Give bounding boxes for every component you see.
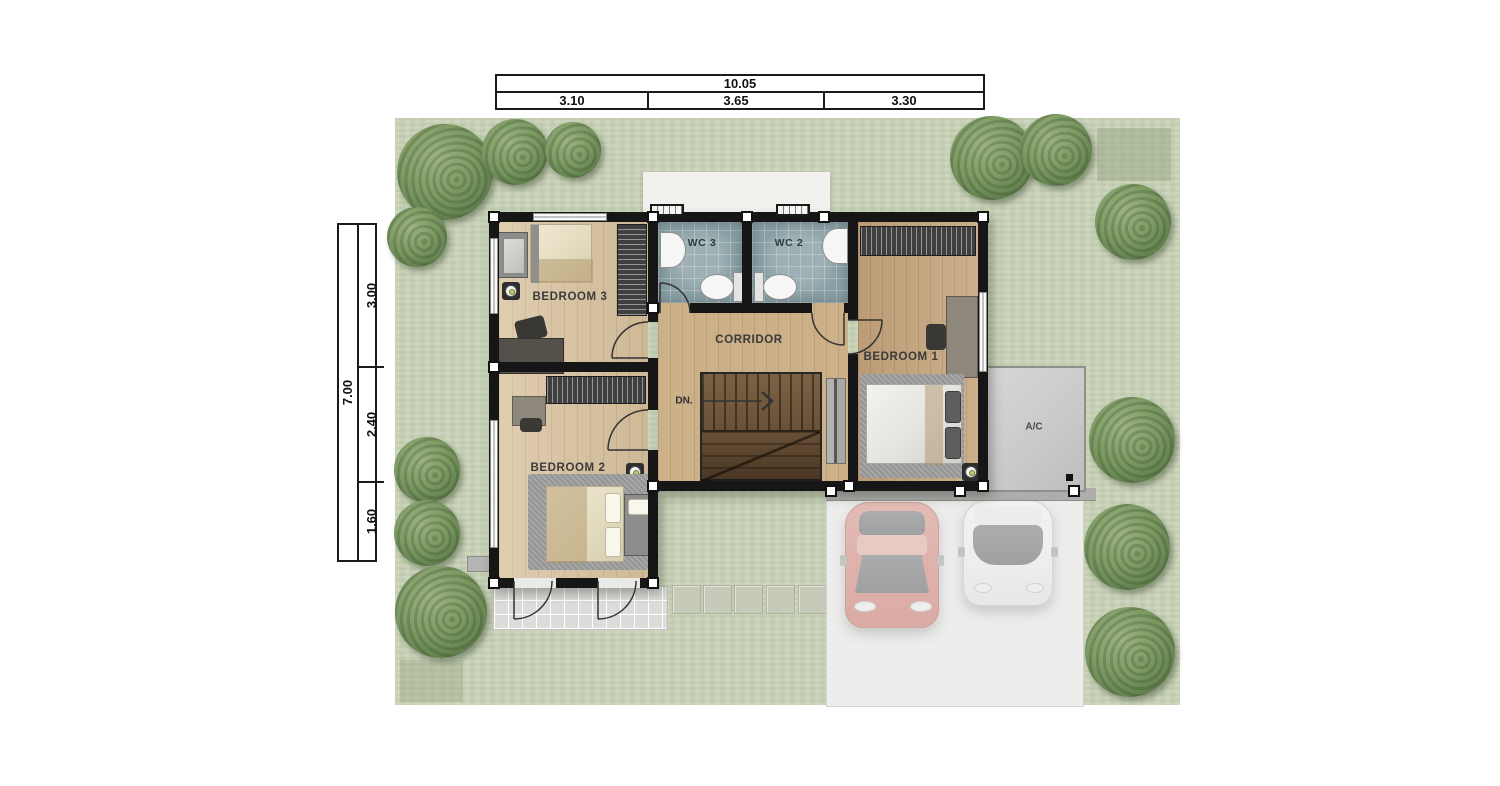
dim-left-total: 7.00 <box>339 225 359 560</box>
door-arc-terrace-2 <box>598 581 636 619</box>
dim-left-seg1: 3.00 <box>359 225 384 368</box>
door-arc-wc2 <box>812 313 844 345</box>
door-arc-wc3 <box>660 283 690 313</box>
dim-left-segments: 3.00 2.40 1.60 <box>359 225 384 560</box>
dim-left-seg3-text: 1.60 <box>364 509 379 534</box>
dim-top-segments: 3.10 3.65 3.30 <box>497 93 983 108</box>
dim-top-total: 10.05 <box>497 76 983 93</box>
dim-top-seg1: 3.10 <box>497 93 647 108</box>
door-arc-bedroom1 <box>848 320 882 354</box>
stair-direction-arrow <box>762 392 772 410</box>
door-arc-terrace-1 <box>514 581 552 619</box>
dim-left-total-text: 7.00 <box>341 380 356 405</box>
door-arc-bedroom2 <box>608 410 648 450</box>
dim-left-seg2: 2.40 <box>359 368 384 483</box>
dimension-bar-top: 10.05 3.10 3.65 3.30 <box>495 74 985 110</box>
annotation-overlay <box>0 0 1500 786</box>
door-arc-bedroom3 <box>612 322 648 358</box>
floor-plan-page: A/C <box>0 0 1500 786</box>
dimension-bar-left: 7.00 3.00 2.40 1.60 <box>337 223 377 562</box>
dim-left-seg3: 1.60 <box>359 483 384 560</box>
dim-left-seg2-text: 2.40 <box>364 412 379 437</box>
dim-top-seg3: 3.30 <box>825 93 983 108</box>
dim-left-seg1-text: 3.00 <box>364 283 379 308</box>
dim-top-seg2: 3.65 <box>647 93 825 108</box>
